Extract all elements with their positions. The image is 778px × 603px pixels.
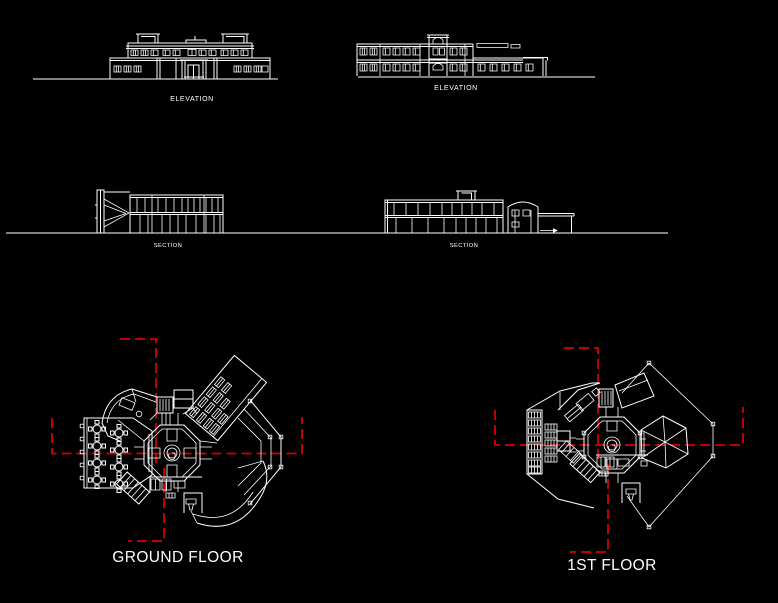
first-floor-north-stair [599,373,654,408]
ground-floor-north-stair [150,390,197,425]
first-floor-southwest-stair-2 [559,441,582,463]
first-floor-plan[interactable] [495,348,743,552]
first-floor-label: 1ST FLOOR [567,557,656,574]
section-left-label: SECTION [154,243,183,249]
first-floor-northwest-rooms [558,383,600,422]
section-left-drawing[interactable] [6,190,668,233]
ground-floor-dining-hall [80,418,152,493]
toilet-fixture [626,489,636,500]
first-floor-south-entrance [596,455,648,503]
first-floor-hexagon-pavilion [641,416,688,468]
toilet-fixture [186,499,196,510]
ground-floor-east-wing [238,399,283,505]
section-right-label: SECTION [450,243,479,249]
drawing-sheet: ELEVATION ELEVATION SECTION [0,0,778,603]
first-floor-centerline-bottom [570,464,608,552]
elevation-left-label: ELEVATION [170,96,214,103]
ground-floor-northeast-classroom [185,355,266,440]
ground-floor-central-atrium [134,413,212,492]
elevation-right-drawing[interactable] [357,35,595,77]
cad-viewport[interactable]: ELEVATION ELEVATION SECTION [0,0,778,603]
ground-floor-south-entrance [150,477,202,513]
elevation-right-label: ELEVATION [434,85,478,92]
section-right-drawing[interactable] [385,191,574,233]
ground-floor-plan[interactable] [52,339,302,541]
elevation-left-drawing[interactable] [33,34,278,79]
ground-floor-label: GROUND FLOOR [112,549,243,566]
